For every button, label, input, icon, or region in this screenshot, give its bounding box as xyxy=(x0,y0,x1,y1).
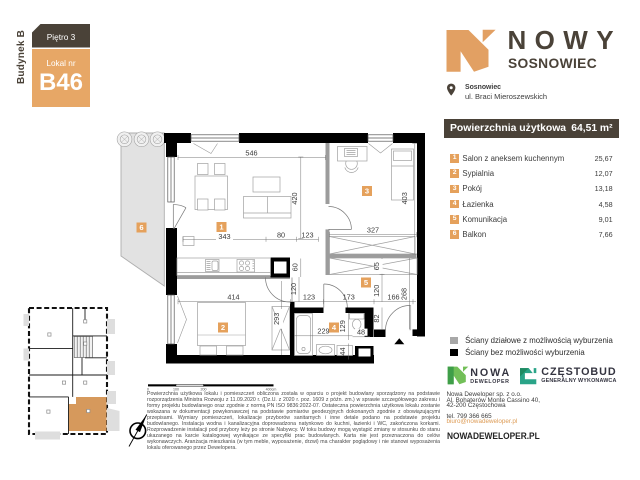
svg-text:123: 123 xyxy=(303,292,315,301)
svg-text:123: 123 xyxy=(301,231,313,240)
svg-text:65: 65 xyxy=(372,262,381,270)
svg-text:120: 120 xyxy=(372,285,381,297)
svg-text:2: 2 xyxy=(221,323,225,332)
svg-text:60: 60 xyxy=(291,263,300,271)
svg-text:80: 80 xyxy=(277,231,285,240)
svg-text:166: 166 xyxy=(387,292,399,301)
svg-text:343: 343 xyxy=(218,232,230,241)
svg-text:44: 44 xyxy=(338,347,347,355)
svg-text:229: 229 xyxy=(317,327,329,336)
svg-text:6: 6 xyxy=(139,223,143,232)
svg-text:403: 403 xyxy=(400,192,409,204)
svg-text:420: 420 xyxy=(290,192,299,204)
svg-text:293: 293 xyxy=(272,313,281,325)
svg-text:3: 3 xyxy=(365,187,369,196)
svg-text:414: 414 xyxy=(227,292,239,301)
svg-text:173: 173 xyxy=(343,292,355,301)
svg-text:546: 546 xyxy=(245,148,257,157)
svg-text:82: 82 xyxy=(372,314,381,322)
svg-text:120: 120 xyxy=(289,283,298,295)
svg-text:327: 327 xyxy=(367,225,379,234)
svg-text:268: 268 xyxy=(399,288,408,300)
svg-text:48: 48 xyxy=(357,328,365,337)
svg-text:129: 129 xyxy=(338,320,347,332)
